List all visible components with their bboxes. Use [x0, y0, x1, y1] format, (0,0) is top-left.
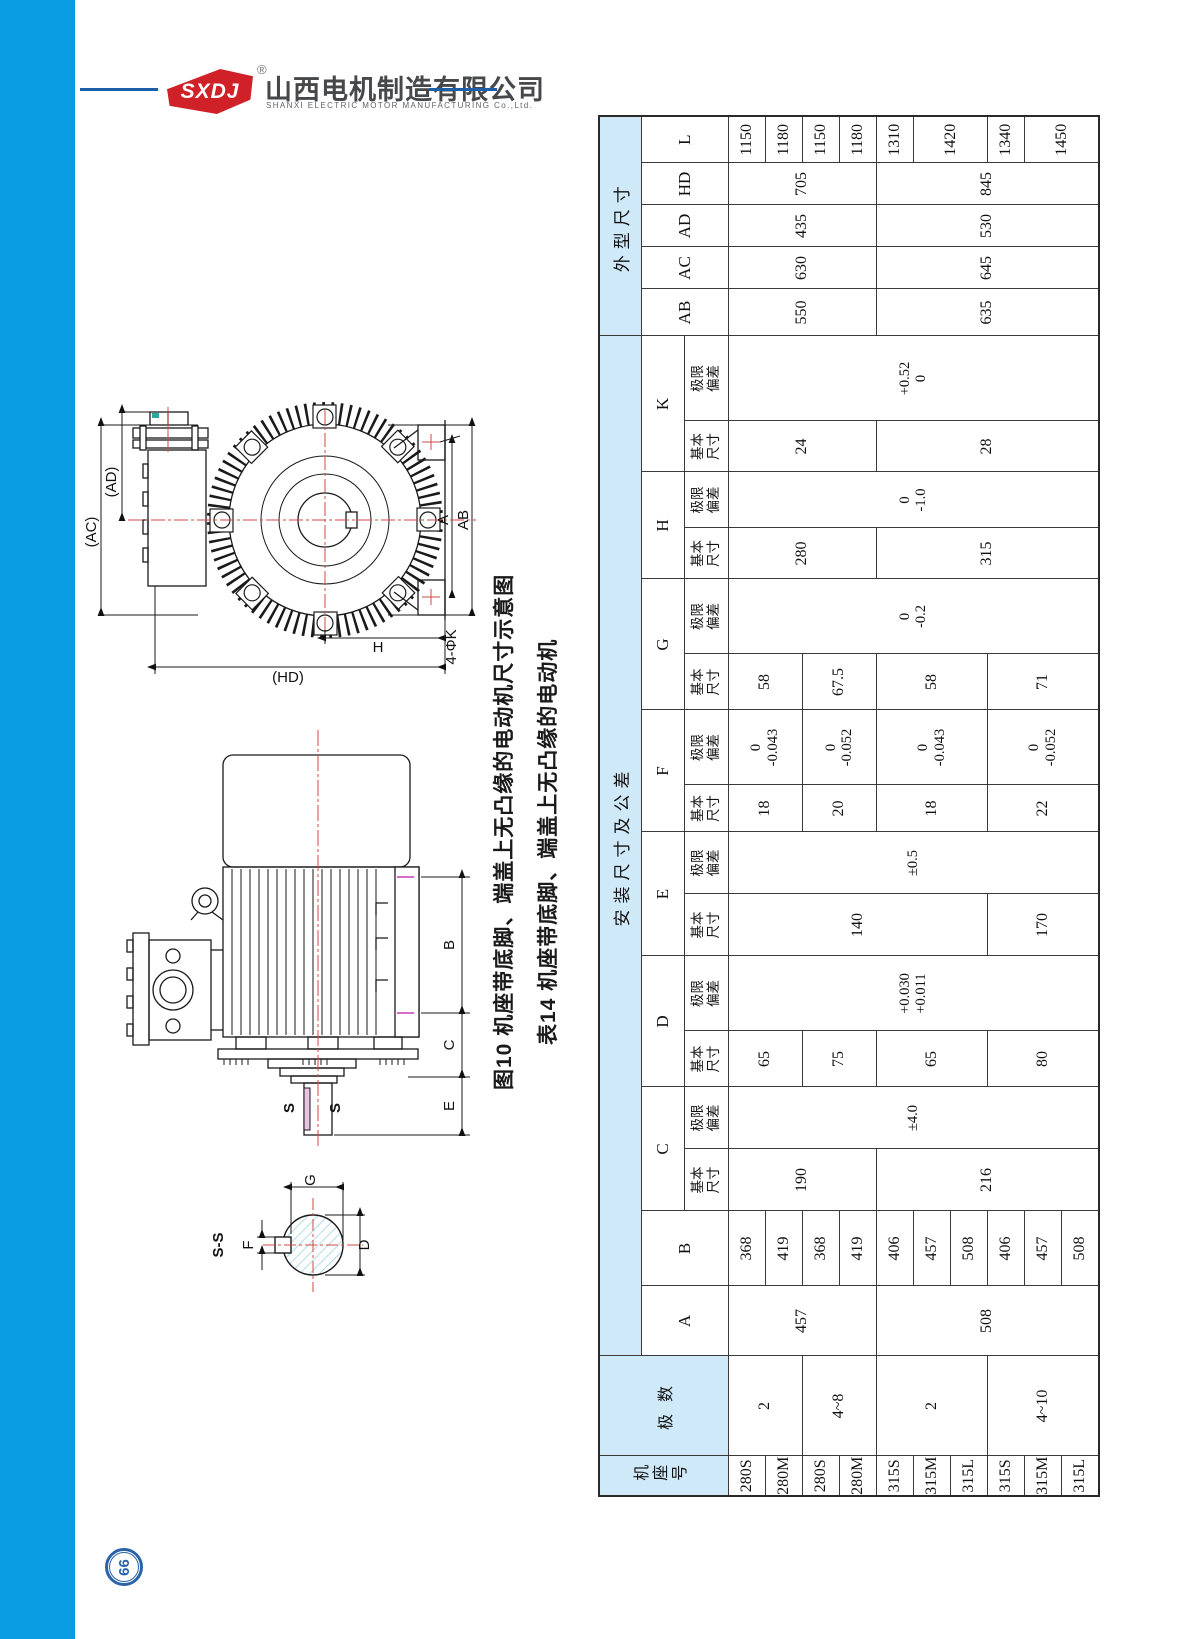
- header-col-ac: AC: [641, 247, 728, 289]
- cell-poles: 4~8: [802, 1356, 876, 1456]
- table-caption: 表14 机座带底脚、端盖上无凸缘的电动机: [531, 640, 567, 1045]
- cell-f-dev: 0 -0.052: [802, 710, 876, 785]
- cell-d: 75: [802, 1031, 876, 1087]
- dim-d-label: D: [356, 1239, 373, 1250]
- header-col-f: F: [641, 710, 684, 832]
- table-row: 315S 2 508 406 216 65 18 0 -0.043 58 315…: [876, 116, 913, 1496]
- subheader-dev: 极限 偏差: [684, 956, 728, 1031]
- cell-e: 170: [988, 894, 1099, 956]
- subheader-basic: 基本 尺寸: [684, 1031, 728, 1087]
- cell-f-dev: 0 -0.043: [728, 710, 802, 785]
- subheader-basic: 基本 尺寸: [684, 785, 728, 832]
- cell-f: 18: [876, 785, 987, 832]
- cell-poles: 4~10: [988, 1356, 1099, 1456]
- cell-h: 280: [728, 528, 876, 579]
- cell-l: 1180: [839, 116, 876, 163]
- header-col-l: L: [641, 116, 728, 163]
- section-ss-label: S-S: [210, 1232, 227, 1257]
- logo-right-rule: [429, 88, 497, 91]
- cell-ac: 645: [876, 247, 1099, 289]
- page-number-badge: 66: [105, 1548, 143, 1586]
- subheader-dev: 极限 偏差: [684, 832, 728, 894]
- subheader-dev: 极限 偏差: [684, 336, 728, 421]
- cell-frame: 315L: [1062, 1456, 1099, 1496]
- header-col-k: K: [641, 336, 684, 472]
- table-row: 280S 2 457 368 190 ±4.0 65 +0.030 +0.011…: [728, 116, 765, 1496]
- section-mark-s1: S: [281, 1103, 298, 1113]
- cell-frame: 315S: [988, 1456, 1025, 1496]
- shaft-section-drawing: G D F S-S: [205, 1150, 380, 1290]
- cell-frame: 280M: [765, 1456, 802, 1496]
- cell-f-dev: 0 -0.043: [876, 710, 987, 785]
- company-name-en: SHANXI ELECTRIC MOTOR MANUFACTURING Co.,…: [266, 101, 533, 110]
- cell-d: 65: [728, 1031, 802, 1087]
- header-col-g: G: [641, 579, 684, 710]
- cell-b: 406: [876, 1211, 913, 1286]
- subheader-basic: 基本 尺寸: [684, 894, 728, 956]
- cell-f: 18: [728, 785, 802, 832]
- cell-frame: 280M: [839, 1456, 876, 1496]
- cell-h: 315: [876, 528, 1099, 579]
- page-number: 66: [116, 1559, 133, 1576]
- cell-b: 368: [802, 1211, 839, 1286]
- cell-hd: 705: [728, 163, 876, 205]
- header-outline-group: 外型尺寸: [599, 116, 641, 336]
- logo-abbr: SXDJ: [181, 80, 240, 104]
- dim-b-label: B: [441, 940, 458, 950]
- cell-f: 22: [988, 785, 1099, 832]
- header-col-d: D: [641, 956, 684, 1087]
- header-col-b: B: [641, 1211, 728, 1286]
- dim-4k-label: 4-ΦK: [443, 629, 460, 664]
- cell-l: 1450: [1025, 116, 1099, 163]
- logo-mark: SXDJ: [167, 69, 253, 114]
- terminal-box-side: [127, 933, 223, 1045]
- cell-l: 1340: [988, 116, 1025, 163]
- cell-frame: 280S: [728, 1456, 765, 1496]
- cell-b: 419: [765, 1211, 802, 1286]
- header-col-c: C: [641, 1087, 684, 1211]
- subheader-dev: 极限 偏差: [684, 710, 728, 785]
- dim-ac-label: (AC): [83, 517, 100, 548]
- dim-a-label: A: [435, 515, 452, 525]
- cell-k-dev: +0.52 0: [728, 336, 1099, 421]
- dim-e-label: E: [441, 1101, 458, 1111]
- cell-g: 58: [876, 654, 987, 710]
- dim-f-label: F: [240, 1240, 257, 1249]
- left-accent-bar: [0, 0, 75, 1639]
- logo-left-rule: [80, 88, 158, 91]
- cell-poles: 2: [876, 1356, 987, 1456]
- subheader-basic: 基本 尺寸: [684, 654, 728, 710]
- cell-c-dev: ±4.0: [728, 1087, 1099, 1149]
- subheader-dev: 极限 偏差: [684, 579, 728, 654]
- dimensions-table-region: 机座号 极 数 安装尺寸及公差 外型尺寸 A B C D E F G H: [598, 120, 1100, 1497]
- dim-hd-label: (HD): [272, 669, 304, 686]
- subheader-basic: 基本 尺寸: [684, 528, 728, 579]
- cell-g: 71: [988, 654, 1099, 710]
- dim-ad-label: (AD): [103, 467, 120, 498]
- cell-poles: 2: [728, 1356, 802, 1456]
- cell-d: 80: [988, 1031, 1099, 1087]
- cell-ad: 530: [876, 205, 1099, 247]
- cell-g: 67.5: [802, 654, 876, 710]
- header-col-ab: AB: [641, 289, 728, 336]
- subheader-dev: 极限 偏差: [684, 472, 728, 528]
- cell-l: 1150: [802, 116, 839, 163]
- cell-d-dev: +0.030 +0.011: [728, 956, 1099, 1031]
- cell-e: 140: [728, 894, 988, 956]
- cell-g: 58: [728, 654, 802, 710]
- cell-c: 216: [876, 1149, 1099, 1211]
- cell-c: 190: [728, 1149, 876, 1211]
- cell-l: 1150: [728, 116, 765, 163]
- subheader-dev: 极限 偏差: [684, 1087, 728, 1149]
- header-col-ad: AD: [641, 205, 728, 247]
- dim-c-label: C: [441, 1039, 458, 1050]
- cell-b: 508: [1062, 1211, 1099, 1286]
- cell-frame: 315S: [876, 1456, 913, 1496]
- cell-b: 457: [1025, 1211, 1062, 1286]
- dim-g-label: G: [302, 1174, 319, 1186]
- cell-h-dev: 0 -1.0: [728, 472, 1099, 528]
- cell-d: 65: [876, 1031, 987, 1087]
- cell-f-dev: 0 -0.052: [988, 710, 1099, 785]
- cell-b: 457: [913, 1211, 950, 1286]
- subheader-basic: 基本 尺寸: [684, 1149, 728, 1211]
- cell-ac: 630: [728, 247, 876, 289]
- cell-b: 419: [839, 1211, 876, 1286]
- dim-ab-label: AB: [455, 510, 472, 530]
- section-mark-s2: S: [327, 1103, 344, 1113]
- header-col-e: E: [641, 832, 684, 956]
- header-col-hd: HD: [641, 163, 728, 205]
- cell-b: 406: [988, 1211, 1025, 1286]
- cell-l: 1180: [765, 116, 802, 163]
- page-number-inner-ring: 66: [109, 1552, 139, 1582]
- dim-h-label: H: [373, 639, 384, 656]
- subheader-basic: 基本 尺寸: [684, 421, 728, 472]
- cell-a: 508: [876, 1286, 1099, 1356]
- cell-frame: 315M: [913, 1456, 950, 1496]
- dimensions-table: 机座号 极 数 安装尺寸及公差 外型尺寸 A B C D E F G H: [598, 115, 1100, 1497]
- header-col-a: A: [641, 1286, 728, 1356]
- cell-f: 20: [802, 785, 876, 832]
- cell-e-dev: ±0.5: [728, 832, 1099, 894]
- cell-l: 1420: [913, 116, 987, 163]
- catalog-page: SXDJ ® 山西电机制造有限公司 SHANXI ELECTRIC MOTOR …: [0, 0, 1200, 1639]
- cell-k: 28: [876, 421, 1099, 472]
- cell-hd: 845: [876, 163, 1099, 205]
- cell-g-dev: 0 -0.2: [728, 579, 1099, 654]
- cell-b: 368: [728, 1211, 765, 1286]
- cell-ad: 435: [728, 205, 876, 247]
- cell-l: 1310: [876, 116, 913, 163]
- header-install-group: 安装尺寸及公差: [599, 336, 641, 1356]
- cell-k: 24: [728, 421, 876, 472]
- cell-b: 508: [951, 1211, 988, 1286]
- figure-caption: 图10 机座带底脚、端盖上无凸缘的电动机尺寸示意图: [487, 597, 523, 1090]
- motor-side-view-drawing: B C E S S: [118, 688, 478, 1153]
- cell-ab: 635: [876, 289, 1099, 336]
- motor-end-view-drawing: (AD) (AC) A AB H (HD) 4-ΦK: [88, 352, 488, 687]
- header-frame: 机座号: [599, 1456, 728, 1496]
- cell-frame: 280S: [802, 1456, 839, 1496]
- cell-a: 457: [728, 1286, 876, 1356]
- cell-ab: 550: [728, 289, 876, 336]
- cell-frame: 315L: [951, 1456, 988, 1496]
- header-col-h: H: [641, 472, 684, 579]
- terminal-box: [133, 412, 208, 586]
- cell-frame: 315M: [1025, 1456, 1062, 1496]
- header-poles: 极 数: [599, 1356, 728, 1456]
